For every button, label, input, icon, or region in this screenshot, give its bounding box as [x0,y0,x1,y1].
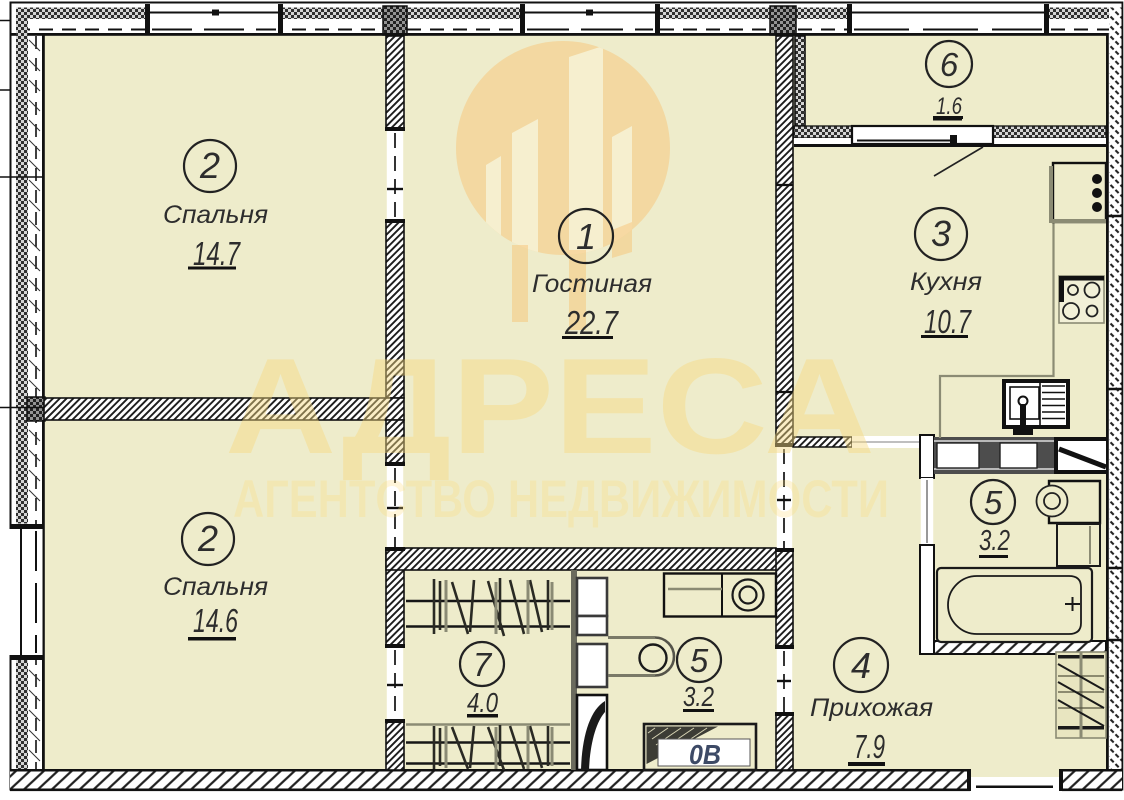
svg-text:Спальня: Спальня [163,573,268,601]
svg-text:3: 3 [931,213,951,254]
svg-text:1: 1 [576,216,596,257]
svg-text:0В: 0В [689,739,721,770]
svg-text:Кухня: Кухня [910,268,982,296]
svg-text:2: 2 [199,145,220,186]
svg-text:5: 5 [690,642,709,679]
svg-text:2: 2 [197,518,218,559]
svg-text:Спальня: Спальня [163,201,268,229]
svg-text:7.9: 7.9 [854,728,885,765]
svg-text:3.2: 3.2 [979,525,1010,557]
svg-text:4: 4 [851,645,871,686]
svg-text:3.2: 3.2 [683,681,714,712]
svg-text:4.0: 4.0 [467,687,498,718]
svg-text:5: 5 [984,484,1003,521]
svg-text:Гостиная: Гостиная [532,270,652,298]
svg-text:10.7: 10.7 [924,303,972,340]
svg-text:22.7: 22.7 [564,304,619,341]
svg-text:6: 6 [940,46,959,83]
svg-text:14.7: 14.7 [193,235,241,272]
svg-text:Прихожая: Прихожая [810,694,933,722]
svg-text:14.6: 14.6 [193,602,238,639]
svg-text:1.6: 1.6 [936,93,962,120]
svg-text:АГЕНТСТВО НЕДВИЖИМОСТИ: АГЕНТСТВО НЕДВИЖИМОСТИ [233,470,889,529]
svg-text:7: 7 [473,646,493,683]
svg-text:АДРЕСА: АДРЕСА [225,330,875,482]
